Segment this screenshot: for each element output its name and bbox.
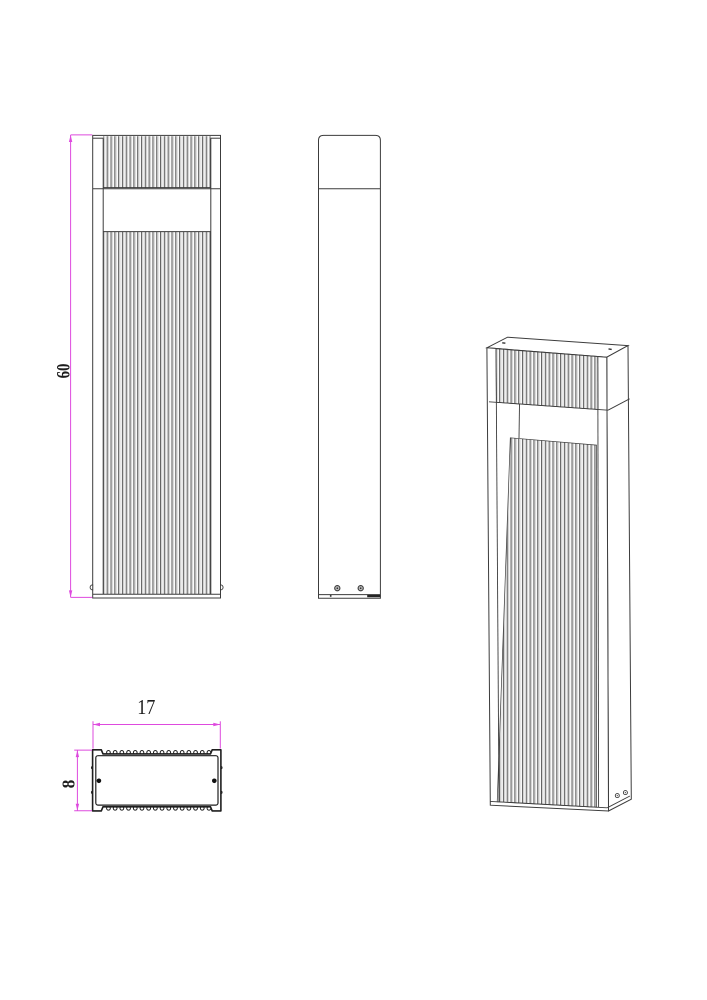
svg-text:8: 8 (58, 779, 78, 788)
svg-text:17: 17 (137, 695, 155, 719)
svg-text:60: 60 (54, 364, 75, 379)
